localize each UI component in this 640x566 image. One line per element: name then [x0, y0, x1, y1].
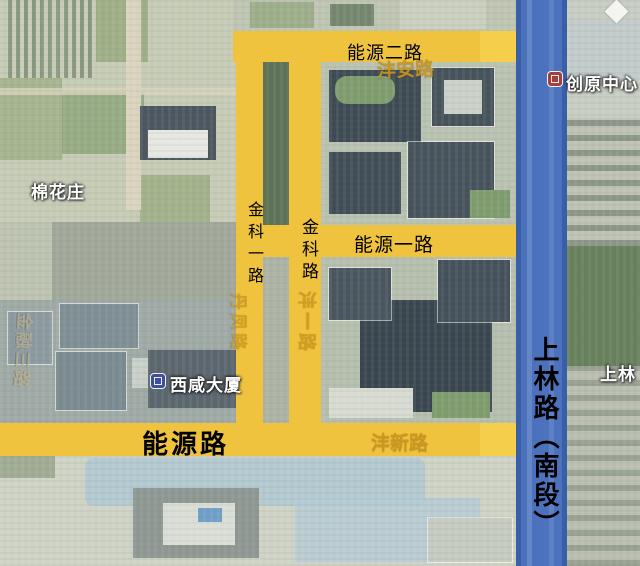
base-label-fengyi-road: 沣一路	[295, 291, 321, 354]
base-label-fengxin-road: 沣新路	[371, 428, 428, 455]
satellite-map[interactable]: 沣安路 沣新路 丹凤路 沣一路 金融三路 能源二路 能源一路 能源路 金科一路 …	[0, 0, 640, 566]
label-shanglin-lu-nanduan: 上林路（南段）	[527, 336, 564, 539]
label-jinke-lu: 金科路	[296, 218, 321, 284]
label-jinke-yi-lu: 金科一路	[241, 201, 265, 289]
poi-label-mianhuazhuang: 棉花庄	[31, 178, 85, 203]
label-nengyuan-lu: 能源路	[142, 424, 229, 461]
road-bright-segment	[480, 31, 516, 62]
road-nengyuan-lu	[0, 423, 516, 456]
base-label-jinrong-san-road: 金融三路	[10, 312, 39, 389]
base-label-danfeng-road: 丹凤路	[228, 293, 253, 353]
road-bright-segment	[480, 423, 516, 456]
poi-label-chuangyuan-center: 创原中心	[566, 70, 638, 95]
icon-window	[551, 75, 559, 83]
building-icon	[548, 72, 562, 86]
poi-label-xixian-building: 西咸大厦	[170, 371, 242, 396]
poi-label-shanglin-partial: 上林	[600, 360, 636, 385]
label-nengyuan-yi-lu: 能源一路	[354, 230, 434, 257]
building-icon	[151, 374, 165, 388]
label-nengyuan-er-lu: 能源二路	[347, 39, 423, 65]
icon-window	[154, 377, 162, 385]
